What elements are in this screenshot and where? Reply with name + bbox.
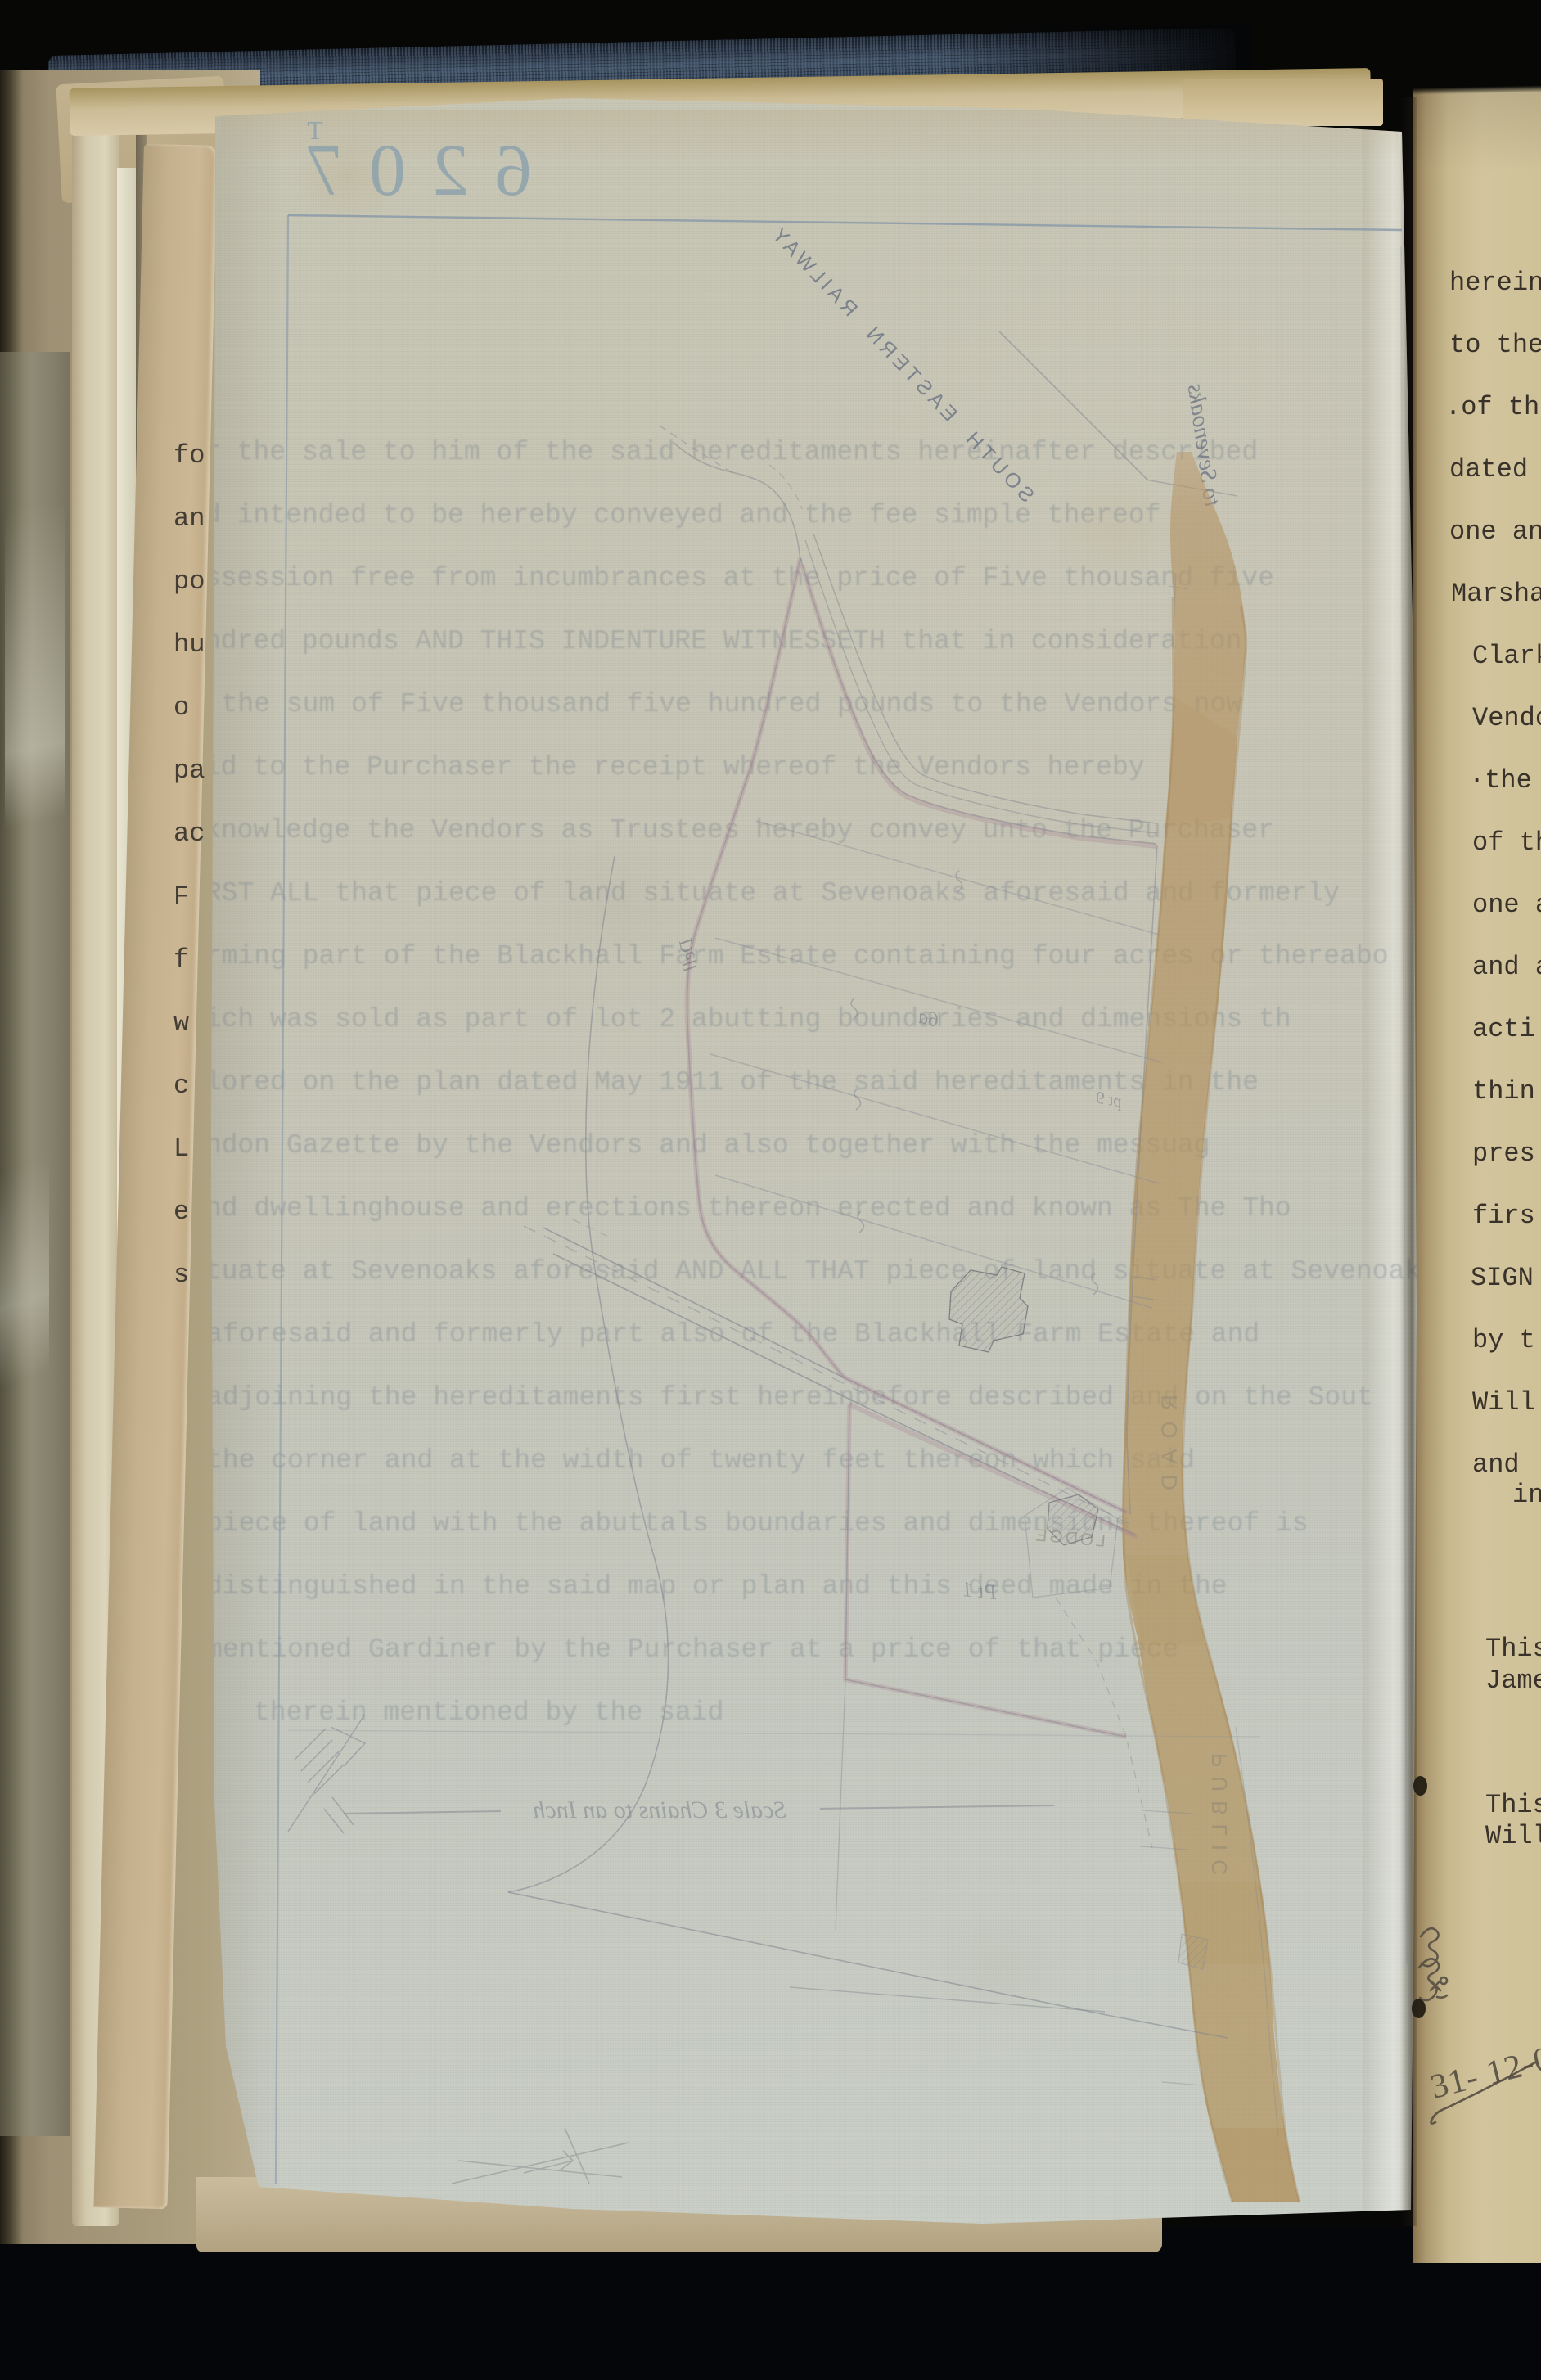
svg-text:Pt 1: Pt 1 <box>961 1577 998 1604</box>
svg-text:6a: 6a <box>917 1006 941 1032</box>
svg-text:Scale 3 Chains to an Inch: Scale 3 Chains to an Inch <box>533 1796 786 1823</box>
svg-text:SOUTH EASTERN RAILWAY: SOUTH EASTERN RAILWAY <box>765 220 1039 507</box>
svg-text:31- 12-0: 31- 12-0 <box>1426 2040 1541 2106</box>
svg-text:PUBLIC: PUBLIC <box>1207 1753 1232 1884</box>
svg-text:ROAD: ROAD <box>1157 1395 1182 1501</box>
svg-text:pt 9: pt 9 <box>1094 1087 1125 1111</box>
svg-text:LODGE: LODGE <box>1032 1526 1106 1551</box>
svg-text:T: T <box>307 115 323 145</box>
svg-text:Dell: Dell <box>675 936 701 972</box>
